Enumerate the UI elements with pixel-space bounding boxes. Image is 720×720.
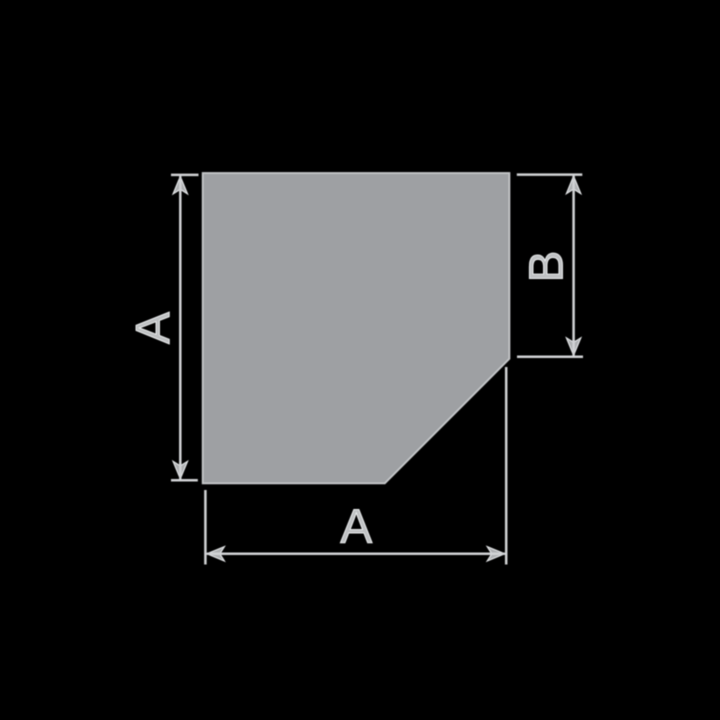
svg-text:B: B [521, 250, 574, 282]
svg-text:A: A [127, 312, 180, 344]
svg-text:A: A [340, 501, 372, 554]
